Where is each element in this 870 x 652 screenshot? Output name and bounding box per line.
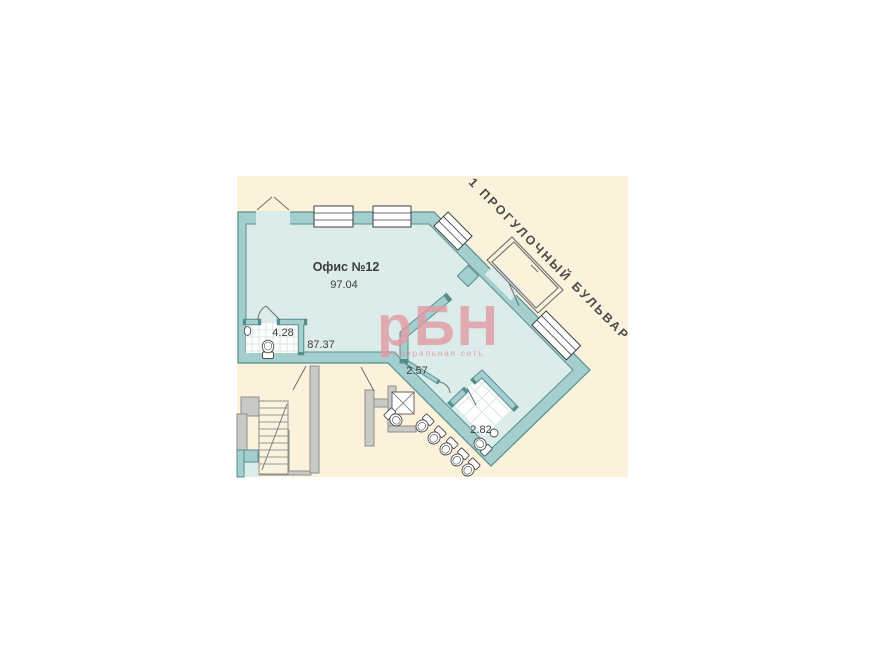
window	[314, 206, 353, 227]
sink-icon	[244, 326, 250, 335]
gray-wall	[388, 426, 416, 432]
gray-wall	[310, 366, 319, 473]
office-total-area-label: 97.04	[330, 279, 358, 291]
window	[373, 206, 411, 227]
main-room-area-label: 87.37	[307, 339, 335, 351]
floorplan-page: 1 ПРОГУЛОЧНЫЙ БУЛЬВАР	[0, 0, 870, 652]
staircase	[259, 401, 288, 474]
gray-wall	[237, 414, 247, 451]
vestibule-area-label: 2.57	[406, 365, 427, 377]
office-name-label: Офис №12	[313, 260, 380, 274]
floorplan-canvas: 1 ПРОГУЛОЧНЫЙ БУЛЬВАР	[0, 0, 870, 652]
vent-shaft	[392, 392, 414, 414]
wc-area-label: 2.82	[470, 424, 491, 436]
door-opening	[256, 211, 290, 225]
watermark-tagline: Федеральная сеть	[385, 348, 484, 358]
bathroom-area-label: 4.28	[272, 327, 293, 339]
toilet-icon	[262, 340, 274, 358]
watermark: рБН Федеральная сеть	[377, 294, 500, 358]
neighbour-unit	[237, 450, 258, 477]
gray-wall	[241, 397, 259, 416]
gray-wall	[365, 390, 374, 446]
